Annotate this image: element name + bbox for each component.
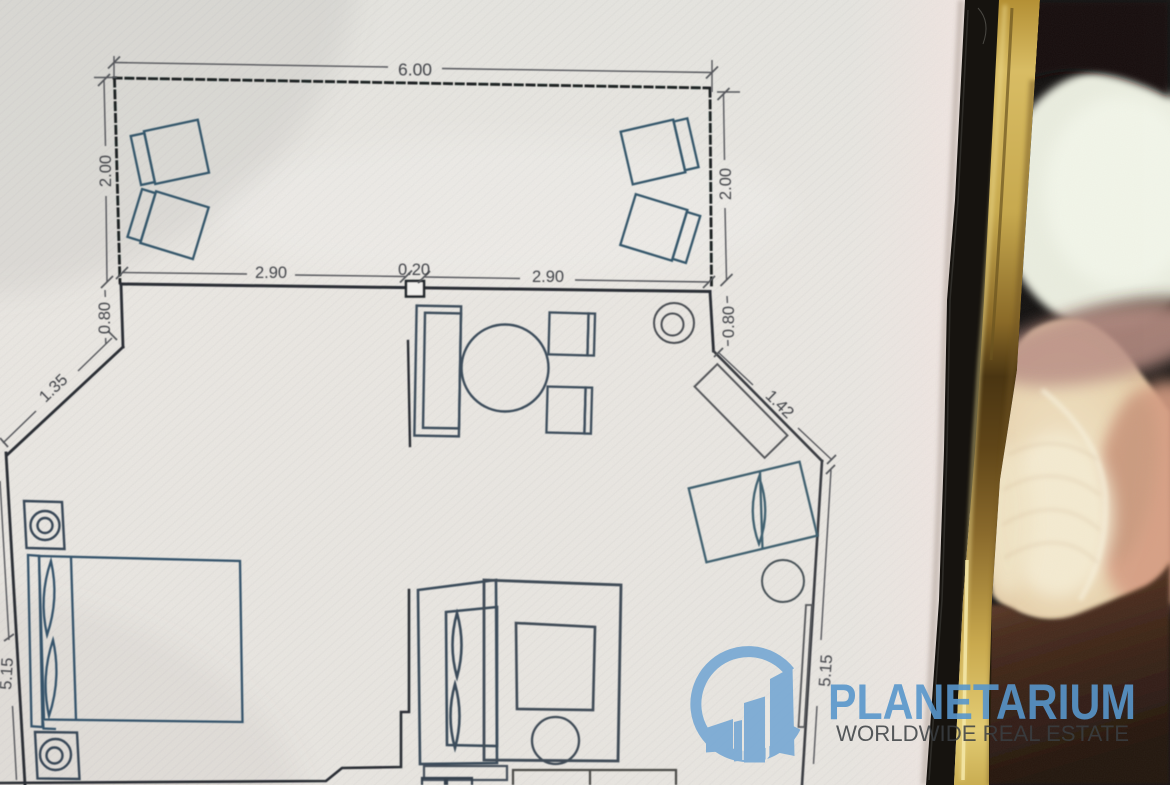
svg-text:0.80: 0.80 xyxy=(720,306,738,338)
svg-text:2.00: 2.00 xyxy=(97,155,115,187)
svg-text:2.90: 2.90 xyxy=(532,268,564,286)
svg-text:2.90: 2.90 xyxy=(255,264,287,282)
svg-text:0.80: 0.80 xyxy=(96,302,114,334)
svg-text:0.20: 0.20 xyxy=(398,261,430,279)
svg-text:WORLDWIDE REAL ESTATE: WORLDWIDE REAL ESTATE xyxy=(836,721,1129,746)
svg-text:5.15: 5.15 xyxy=(0,657,17,690)
svg-text:2.00: 2.00 xyxy=(717,168,735,200)
svg-text:6.00: 6.00 xyxy=(398,60,432,80)
